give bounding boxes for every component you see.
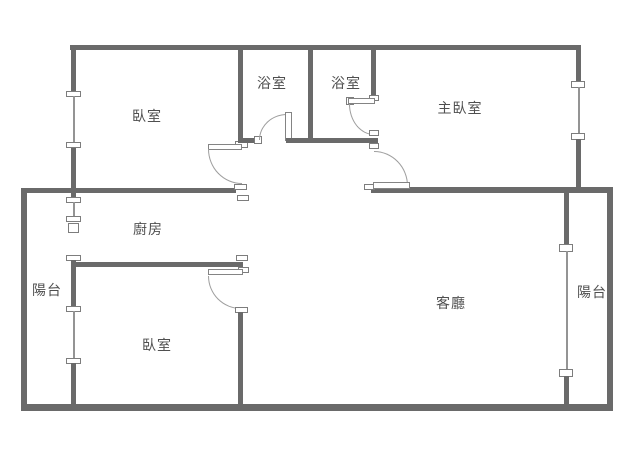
- wall-outer-right: [607, 188, 613, 411]
- door-leaf-bedroom-bottom: [208, 269, 243, 275]
- room-label-bedroom-top: 臥室: [132, 106, 162, 126]
- wall-balcony-right-upper: [564, 192, 569, 247]
- wall-bottom: [21, 404, 613, 411]
- wall-master-right-lower: [576, 139, 581, 190]
- door-swing-arc-bedroom-top: [208, 149, 242, 184]
- wall-bedroom-top-right: [238, 45, 243, 142]
- window-cap: [66, 216, 81, 222]
- door-swing-arc-bedroom-bottom: [208, 276, 241, 309]
- wall-balcony-right-lower: [564, 376, 569, 406]
- window-bedroom-top: [73, 96, 75, 143]
- room-label-kitchen: 廚房: [133, 219, 163, 239]
- door-leaf-bathroom-left: [285, 112, 292, 141]
- door-jamb: [369, 130, 379, 136]
- room-label-balcony-right: 陽台: [577, 282, 607, 302]
- wall-outer-left-horizontal: [21, 188, 236, 193]
- wall-bathroom-right-east-upper: [371, 45, 376, 98]
- window-master: [578, 87, 580, 135]
- door-post: [68, 223, 79, 233]
- wall-bedroom-top-left-lower: [71, 146, 76, 193]
- wall-balcony-left-mid: [71, 260, 76, 309]
- window-bedroom-balcony: [73, 311, 75, 361]
- room-label-bathroom-right: 浴室: [331, 73, 361, 93]
- wall-master-right-upper: [576, 45, 581, 84]
- door-jamb: [234, 184, 247, 190]
- room-label-bedroom-bottom: 臥室: [142, 335, 172, 355]
- window-living-balcony: [566, 251, 568, 371]
- door-swing-arc-bathroom-left: [259, 114, 287, 140]
- door-jamb: [369, 143, 379, 149]
- floor-plan: 臥室 浴室 浴室 主臥室 廚房 陽台 臥室 客廳 陽台: [0, 0, 640, 461]
- room-label-balcony-left: 陽台: [32, 280, 62, 300]
- room-label-living-room: 客廳: [436, 293, 466, 313]
- door-swing-arc-master: [374, 151, 408, 186]
- wall-bathroom-divider: [308, 45, 313, 143]
- door-jamb: [237, 195, 249, 201]
- wall-top: [70, 45, 581, 50]
- wall-outer-left-vertical: [21, 188, 27, 411]
- wall-balcony-left-low: [71, 363, 76, 407]
- wall-bedroom-bottom-right: [238, 312, 243, 405]
- door-leaf-master: [373, 182, 410, 189]
- room-label-master-bedroom: 主臥室: [438, 98, 483, 118]
- room-label-bathroom-left: 浴室: [257, 73, 287, 93]
- wall-kitchen-bottom: [72, 262, 243, 267]
- door-jamb: [236, 255, 248, 261]
- window-cap: [66, 142, 81, 148]
- wall-bathrooms-bottom: [286, 138, 378, 143]
- wall-bedroom-top-left-upper: [71, 45, 76, 93]
